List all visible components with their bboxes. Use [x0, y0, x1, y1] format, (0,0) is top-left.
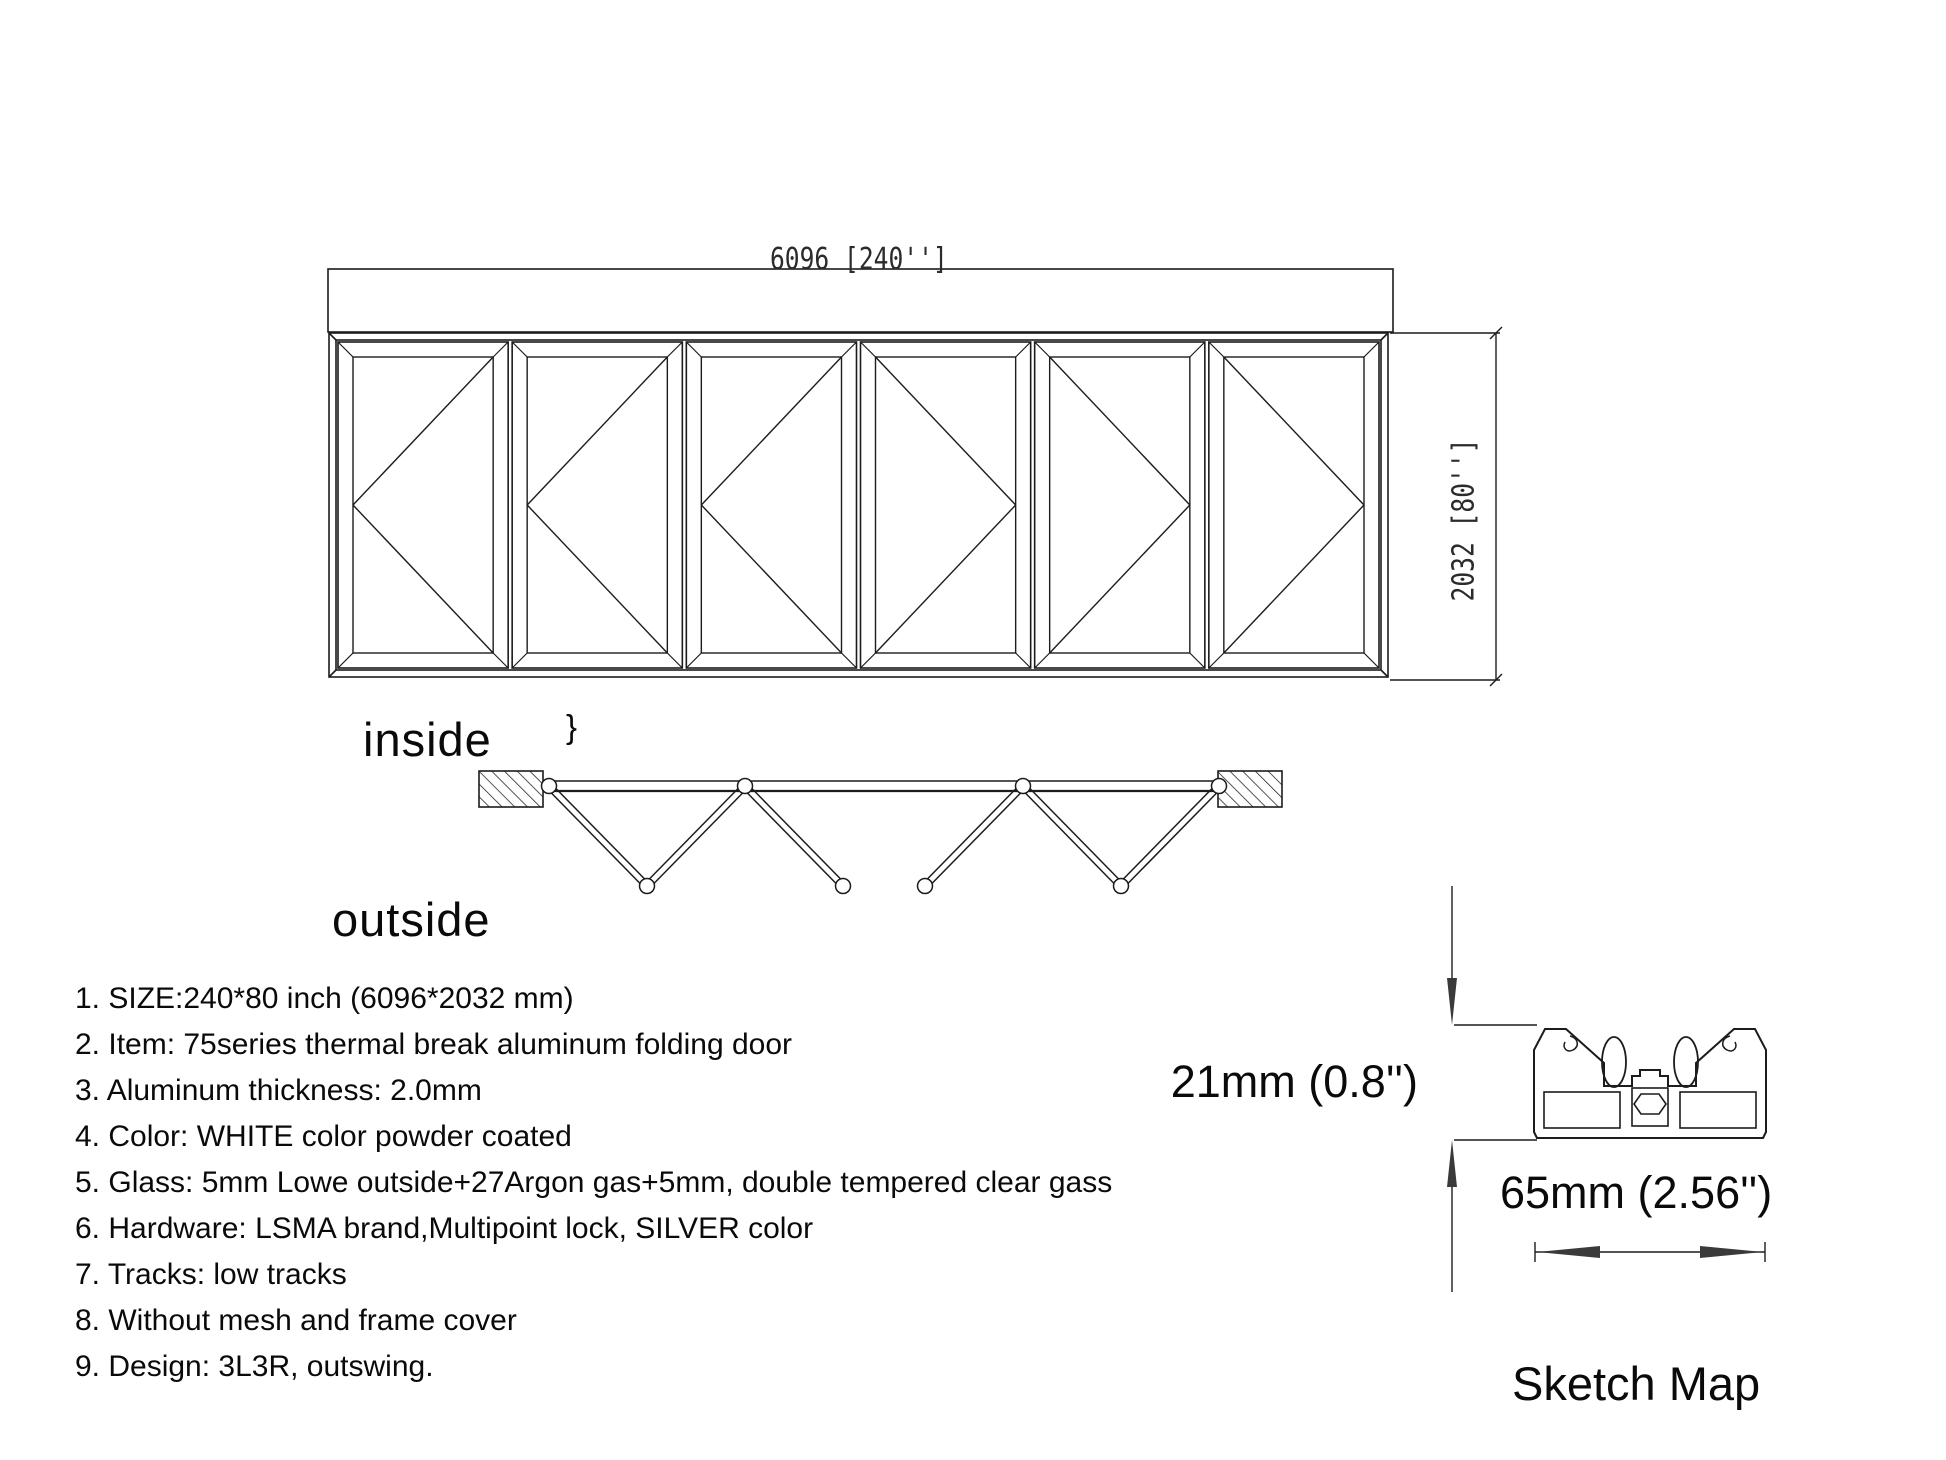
door-panels [338, 342, 1379, 668]
leader-mark: } [566, 708, 577, 746]
spec-item: 9. Design: 3L3R, outswing. [75, 1344, 1112, 1390]
spec-item: 7. Tracks: low tracks [75, 1252, 1112, 1298]
spec-item: 5. Glass: 5mm Lowe outside+27Argon gas+5… [75, 1160, 1112, 1206]
inside-label: inside [363, 712, 492, 767]
height-dimension-label: 2032 [80''] [1447, 439, 1482, 602]
folding-plan-view [479, 771, 1282, 894]
profile-height-label: 21mm (0.8'') [1150, 1056, 1418, 1108]
door-drawing-page: 6096 [240''] 2032 [80''] inside } outsid… [0, 0, 1946, 1460]
spec-item: 4. Color: WHITE color powder coated [75, 1114, 1112, 1160]
width-dimension-label: 6096 [240''] [770, 242, 948, 277]
spec-item: 6. Hardware: LSMA brand,Multipoint lock,… [75, 1206, 1112, 1252]
profile-width-label: 65mm (2.56'') [1500, 1167, 1772, 1219]
profile-dimensions [1447, 886, 1765, 1292]
sketch-map-caption: Sketch Map [1512, 1356, 1760, 1411]
spec-list: 1. SIZE:240*80 inch (6096*2032 mm) 2. It… [75, 976, 1112, 1390]
spec-item: 8. Without mesh and frame cover [75, 1298, 1112, 1344]
top-dimension-and-header [328, 269, 1393, 332]
spec-item: 2. Item: 75series thermal break aluminum… [75, 1022, 1112, 1068]
spec-item: 1. SIZE:240*80 inch (6096*2032 mm) [75, 976, 1112, 1022]
door-frame [329, 333, 1388, 677]
outside-label: outside [332, 892, 491, 947]
track-profile-section [1534, 1029, 1766, 1138]
spec-item: 3. Aluminum thickness: 2.0mm [75, 1068, 1112, 1114]
